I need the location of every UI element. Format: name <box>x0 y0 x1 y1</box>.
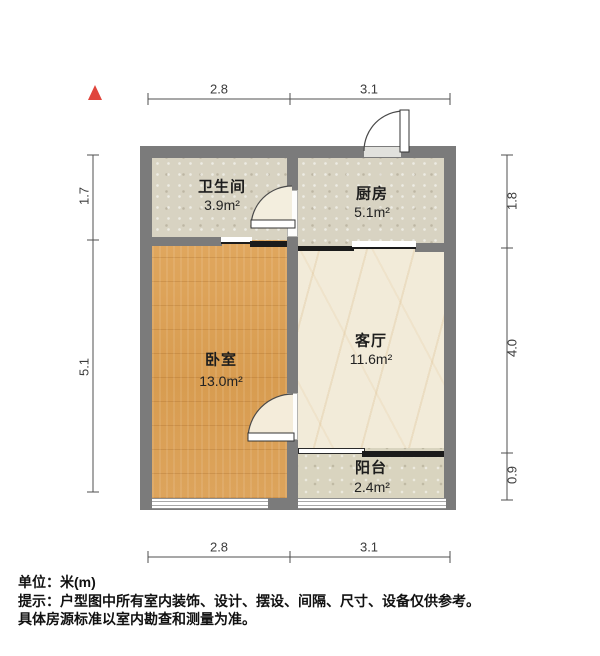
dim-left-upper: 1.7 <box>77 187 92 205</box>
wall-kitchen-living-stub <box>415 243 444 252</box>
bathroom-wall-panel-black <box>250 241 287 247</box>
kitchen-area: 5.1m² <box>354 204 390 220</box>
floorplan-page: 卫生间 3.9m² 厨房 5.1m² 卧室 13.0m² 客厅 11.6m² 阳… <box>0 0 600 656</box>
wall-top <box>140 146 456 158</box>
dim-top-right: 3.1 <box>360 82 378 97</box>
unit-note: 单位：米(m) <box>18 573 578 592</box>
bedroom-label: 卧室 <box>205 349 237 370</box>
living-room-label: 客厅 <box>355 330 387 351</box>
dimension-line-top <box>148 93 450 105</box>
living-room-area: 11.6m² <box>350 351 393 367</box>
bedroom-door-opening <box>287 393 298 440</box>
dim-right-lower: 0.9 <box>505 466 520 484</box>
wall-left <box>140 146 152 510</box>
entry-door-threshold <box>364 147 401 157</box>
dim-bottom-left: 2.8 <box>210 540 228 555</box>
dim-top-left: 2.8 <box>210 82 228 97</box>
bedroom-window <box>152 498 268 509</box>
standard-note: 具体房源标准以室内勘查和测量为准。 <box>18 610 578 629</box>
balcony-area: 2.4m² <box>354 479 390 495</box>
dim-bottom-right: 3.1 <box>360 540 378 555</box>
dim-left-lower: 5.1 <box>77 358 92 376</box>
bathroom-door-opening <box>287 190 298 237</box>
kitchen-label: 厨房 <box>356 183 388 204</box>
balcony-label: 阳台 <box>355 457 387 478</box>
wall-right <box>444 146 456 510</box>
bathroom-wall-panel-white <box>221 237 252 244</box>
bedroom-area: 13.0m² <box>199 373 243 389</box>
bathroom-area: 3.9m² <box>204 197 240 213</box>
north-triangle-icon <box>88 85 102 100</box>
footer-notes: 单位：米(m) 提示：户型图中所有室内装饰、设计、摆设、间隔、尺寸、设备仅供参考… <box>18 573 578 629</box>
kitchen-wall-panel-black <box>298 246 354 251</box>
wall-bathroom-bedroom <box>152 237 222 246</box>
disclaimer-note: 提示：户型图中所有室内装饰、设计、摆设、间隔、尺寸、设备仅供参考。 <box>18 592 578 611</box>
kitchen-wall-panel-white <box>352 241 416 249</box>
balcony-window <box>298 498 446 509</box>
balcony-wall-panel-white <box>298 448 365 454</box>
dim-right-upper: 1.8 <box>505 192 520 210</box>
bathroom-label: 卫生间 <box>198 176 246 197</box>
dim-right-middle: 4.0 <box>505 339 520 357</box>
dimension-line-bottom <box>148 551 450 563</box>
dimension-line-left <box>87 155 99 492</box>
